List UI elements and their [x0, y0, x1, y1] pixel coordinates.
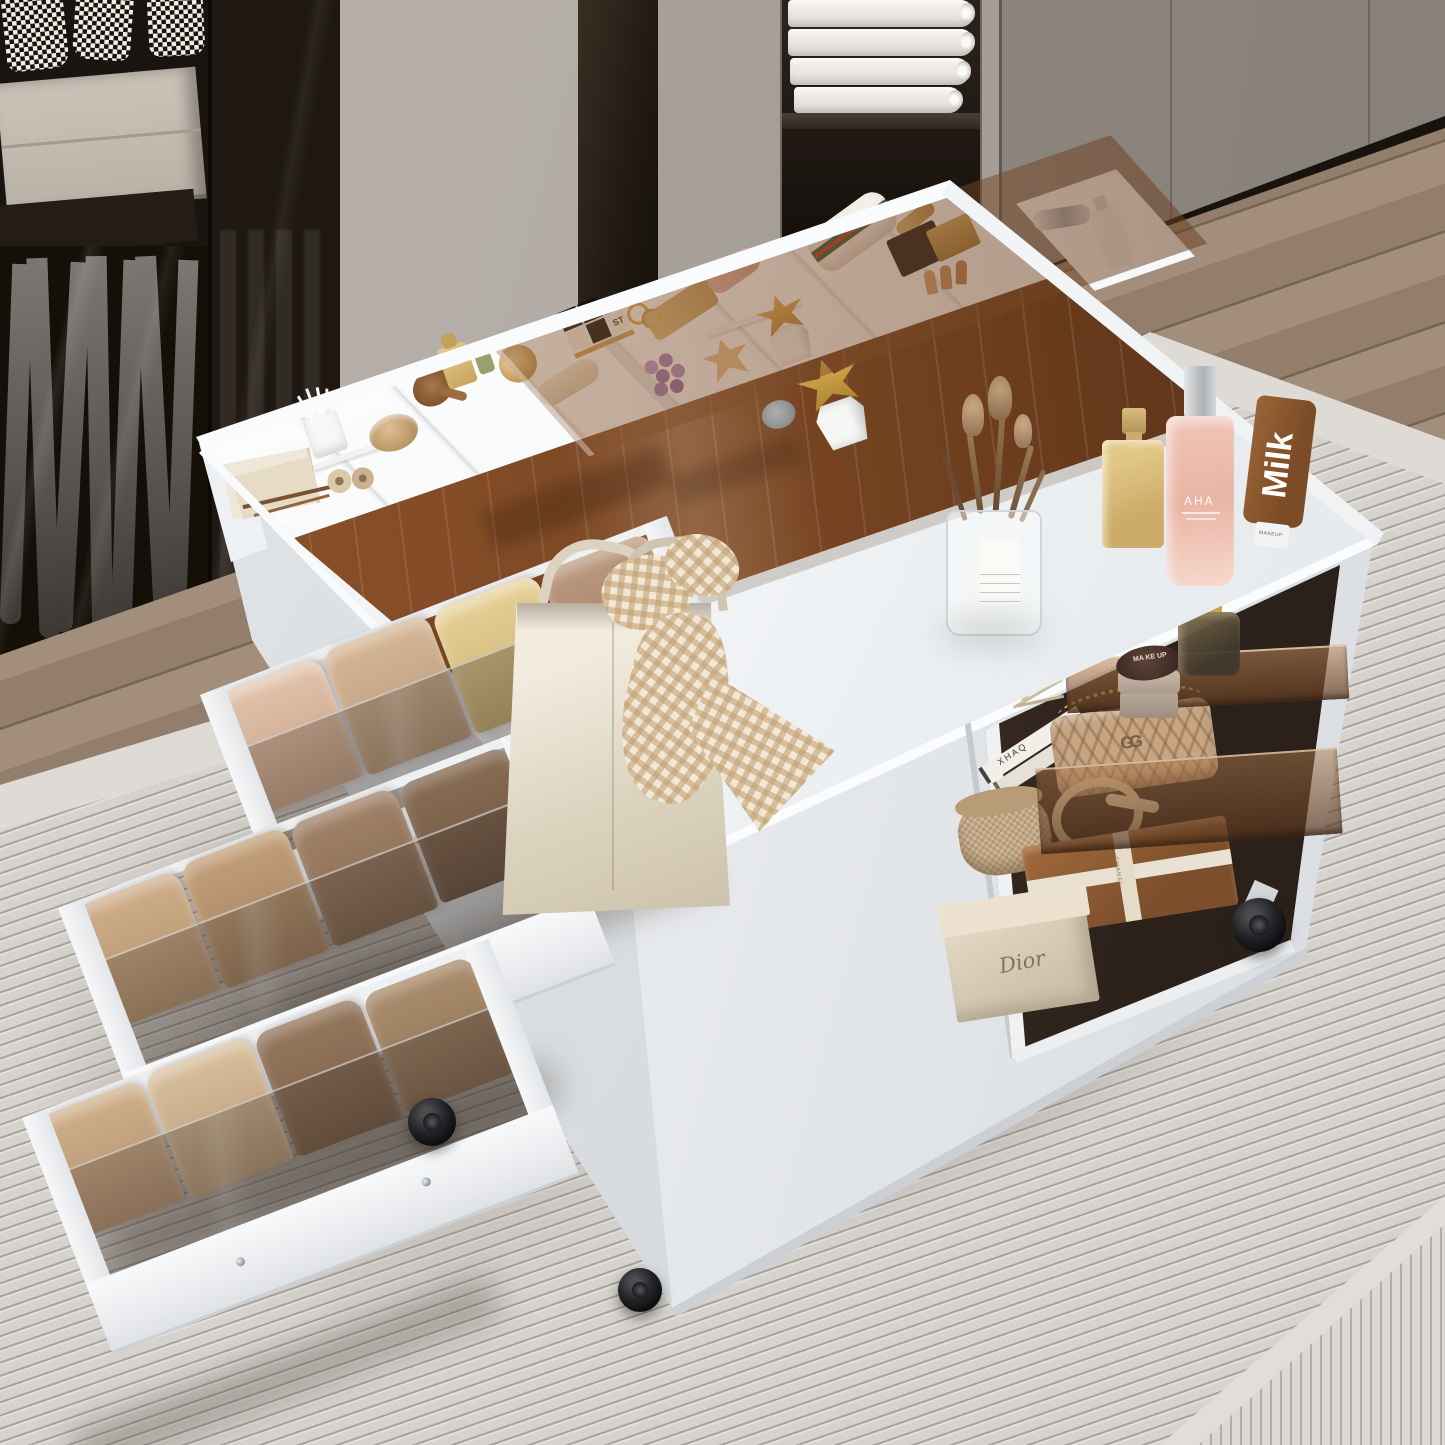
cup-label-card	[980, 540, 1020, 604]
cup-shadow	[938, 622, 1044, 642]
closet-scene: XHAQ GG MA KE UP CHANEL	[0, 0, 1445, 1445]
glass-cup	[946, 510, 1042, 636]
hanging-garment	[0, 0, 70, 73]
towel	[794, 87, 962, 113]
caster-wheel	[1232, 898, 1286, 952]
aha-label: AHA	[1184, 494, 1215, 508]
caster-wheel	[618, 1268, 662, 1312]
towel	[788, 29, 974, 56]
brush-tip	[1014, 414, 1032, 448]
gold-perfume-bottle	[1098, 408, 1168, 550]
cabinet-seam-5	[1368, 0, 1370, 153]
brush-tip	[988, 376, 1012, 420]
brush-tip	[962, 394, 984, 436]
hanging-garment	[146, 0, 205, 57]
aha-label-line	[1182, 512, 1220, 514]
wardrobe-drawer-seam	[1, 128, 201, 148]
caster-wheel	[408, 1098, 456, 1146]
drawer-screw	[235, 1256, 247, 1268]
towel	[788, 0, 974, 27]
niche-shelf-board	[782, 113, 980, 129]
perfume-cap	[1122, 408, 1146, 434]
perfume-body	[1102, 440, 1164, 548]
brush-cup	[928, 470, 1058, 646]
gingham-scarf	[566, 529, 796, 859]
aha-mist-bottle: AHA	[1162, 366, 1238, 590]
towel	[790, 58, 970, 85]
aha-label-line	[1186, 518, 1216, 520]
tote-bag	[470, 535, 770, 925]
drawer-screw	[420, 1176, 432, 1188]
aha-cap	[1184, 366, 1216, 418]
hanging-garment	[72, 0, 135, 62]
designer-box: Dior	[937, 883, 1107, 1029]
